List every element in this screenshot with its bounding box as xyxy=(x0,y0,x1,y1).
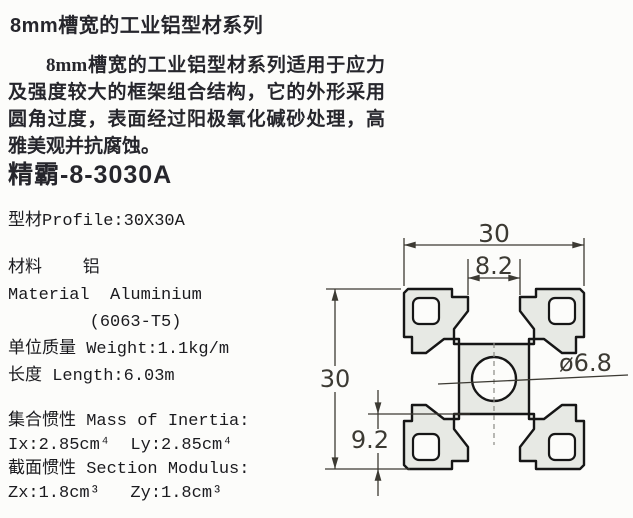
corner-hole-top-right xyxy=(549,298,575,324)
spec-material-en: Material Aluminium xyxy=(8,282,229,309)
catalog-page: 8mm槽宽的工业铝型材系列 8mm槽宽的工业铝型材系列适用于应力及强度较大的框架… xyxy=(0,0,633,518)
dim-hole-label: ø6.8 xyxy=(559,349,612,377)
corner-hole-bottom-left xyxy=(413,434,439,460)
corner-hole-top-left xyxy=(413,298,439,324)
spec-length: 长度 Length:6.03m xyxy=(8,363,229,390)
spec-material-grade: (6063-T5) xyxy=(8,309,229,336)
spec-inertia-title: 集合惯性 Mass of Inertia: xyxy=(8,410,249,434)
spec-inertia-values: Ix:2.85cm⁴ Ly:2.85cm⁴ xyxy=(8,434,249,458)
spec-profile: 型材Profile:30X30A xyxy=(8,205,185,231)
dim-slot-width-label: 8.2 xyxy=(475,252,513,280)
spec-modulus-values: Zx:1.8cm³ Zy:1.8cm³ xyxy=(8,482,249,506)
model-heading: 精霸-8-3030A xyxy=(8,155,172,191)
spec-modulus-title: 截面惯性 Section Modulus: xyxy=(8,458,249,482)
page-title: 8mm槽宽的工业铝型材系列 xyxy=(10,9,263,38)
corner-hole-bottom-right xyxy=(549,434,575,460)
dim-top-width-label: 30 xyxy=(478,219,510,248)
spec-inertia-block: 集合惯性 Mass of Inertia: Ix:2.85cm⁴ Ly:2.85… xyxy=(8,410,249,506)
dim-left-height-label: 30 xyxy=(320,365,351,393)
dim-slot-depth-label: 9.2 xyxy=(351,426,389,454)
profile-drawing: 30 8.2 30 9.2 ø6.8 xyxy=(310,215,633,518)
spec-weight: 单位质量 Weight:1.1kg/m xyxy=(8,336,229,363)
spec-material-block: 材料 铝 Material Aluminium (6063-T5) 单位质量 W… xyxy=(8,255,229,390)
intro-paragraph: 8mm槽宽的工业铝型材系列适用于应力及强度较大的框架组合结构，它的外形采用圆角过… xyxy=(8,52,385,160)
spec-material-cn: 材料 铝 xyxy=(8,255,229,282)
